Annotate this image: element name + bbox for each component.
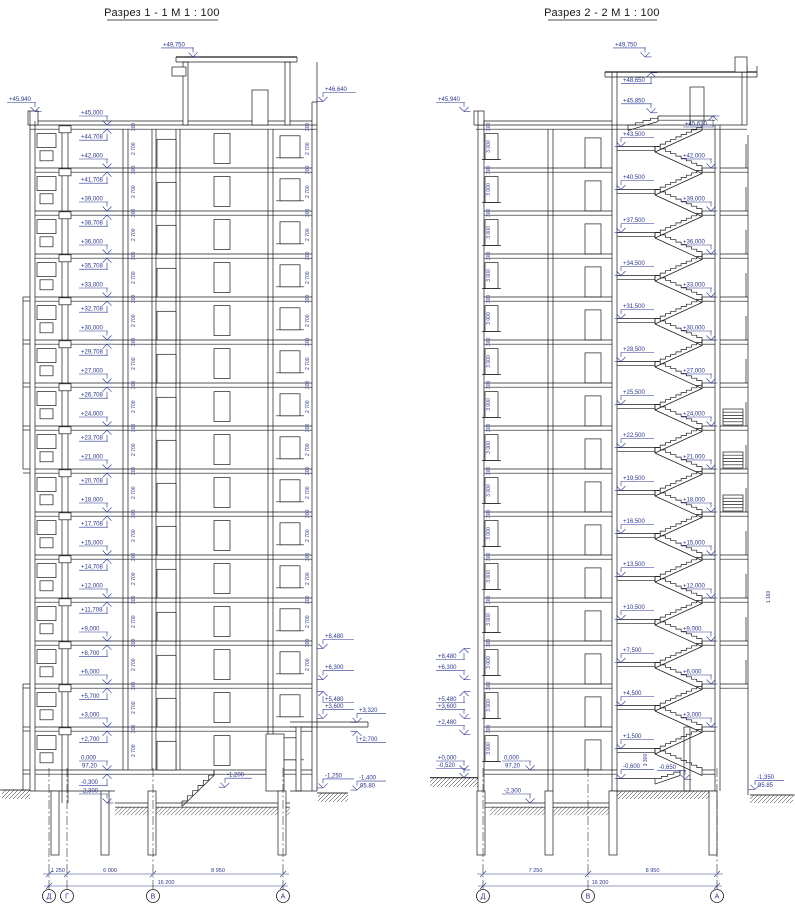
elevation-mark: +31,500: [615, 304, 655, 319]
label: 16 200: [592, 880, 609, 886]
label: +26,708: [81, 393, 104, 399]
label: 300: [486, 553, 492, 562]
label: +18,000: [683, 498, 706, 504]
label: 1 250: [51, 868, 65, 874]
label: 2 700: [305, 314, 311, 327]
label: 97,20: [505, 764, 521, 770]
label: 6 000: [103, 868, 117, 874]
label: +24,000: [81, 412, 104, 418]
label: +48,650: [623, 78, 646, 84]
label: 3 000: [486, 398, 492, 411]
label: +31,500: [623, 304, 646, 310]
elevation-mark: +9,000: [79, 627, 114, 642]
label: 0,000: [504, 756, 520, 762]
elevation-mark: +4,500: [615, 691, 655, 706]
elevation-mark: +40,500: [615, 175, 655, 190]
label: +3,000: [683, 713, 702, 719]
label: +30,000: [81, 326, 104, 332]
elevation-mark: +3,320: [351, 708, 387, 723]
label: +24,000: [683, 412, 706, 418]
label: +6,300: [438, 665, 457, 671]
label: 300: [486, 510, 492, 519]
elevation-mark: +49,750: [613, 42, 652, 57]
elevation-mark: +11,708: [79, 602, 114, 614]
label: 300: [486, 639, 492, 648]
label: +2,700: [359, 737, 378, 743]
label: +6,000: [81, 670, 100, 676]
label: Д: [47, 894, 52, 901]
label: -1,350: [757, 775, 775, 781]
axis-bubble: А: [711, 890, 724, 903]
label: 16 200: [158, 880, 175, 886]
label: 2 700: [305, 271, 311, 284]
label: 300: [305, 596, 311, 605]
label: 1 160: [766, 591, 772, 604]
label: +17,708: [81, 522, 104, 528]
section-2-drawing: +49,750+45,940+48,650+45,850+45,630+8,48…: [430, 42, 795, 902]
label: +8,480: [325, 634, 344, 640]
label: 300: [131, 166, 137, 175]
elevation-mark: +21,000: [79, 455, 114, 470]
label: +40,500: [623, 175, 646, 181]
label: -0,300: [81, 780, 99, 786]
label: 3 000: [486, 183, 492, 196]
label: +12,000: [81, 584, 104, 590]
elevation-mark: +37,500: [615, 218, 655, 233]
label: +11,708: [81, 608, 103, 614]
elevation-mark: +48,650: [621, 73, 658, 85]
label: +6,300: [325, 665, 344, 671]
label: 0,000: [81, 756, 97, 762]
label: +45,630: [685, 122, 708, 128]
elevation-mark: +2,700: [79, 731, 114, 743]
label: 2 700: [305, 615, 311, 628]
label: +42,000: [683, 154, 706, 160]
elevation-mark: 0,00097,20: [502, 756, 537, 771]
label: 2 700: [131, 314, 137, 327]
elevation-mark: +3,600: [317, 704, 355, 719]
label: 300: [305, 424, 311, 433]
label: 300: [305, 467, 311, 476]
axis-bubble: В: [582, 890, 595, 903]
label: +27,000: [81, 369, 104, 375]
elevation-mark: -0,300: [79, 774, 114, 786]
label: 300: [131, 553, 137, 562]
elevation-mark: +6,000: [79, 670, 114, 685]
label: +16,500: [623, 519, 646, 525]
label: 300: [305, 252, 311, 261]
label: +49,750: [615, 42, 638, 48]
elevation-mark: +26,708: [79, 387, 114, 399]
label: 2 700: [131, 443, 137, 456]
drawing-sheet: Разрез 1 - 1 М 1 : 100 Разрез 2 - 2 М 1 …: [0, 0, 795, 912]
elevation-mark: +45,940: [436, 97, 471, 112]
elevation-mark: +8,480: [317, 634, 355, 649]
label: 2 700: [131, 615, 137, 628]
label: 2 700: [305, 185, 311, 198]
axis-bubble: Д: [477, 890, 490, 903]
label: 300: [305, 295, 311, 304]
label: 2 700: [305, 357, 311, 370]
elevation-mark: +39,000: [79, 197, 114, 212]
elevation-mark: +2,700: [351, 731, 387, 743]
label: 300: [131, 682, 137, 691]
label: +6,000: [683, 670, 702, 676]
label: 2 700: [131, 400, 137, 413]
label: +3,600: [438, 704, 457, 710]
elevation-mark: +25,500: [615, 390, 655, 405]
label: 300: [486, 209, 492, 218]
label: 2 700: [305, 529, 311, 542]
label: 3 000: [486, 312, 492, 325]
label: +38,708: [81, 221, 104, 227]
elevation-mark: +5,480: [436, 692, 471, 704]
label: 2 700: [131, 658, 137, 671]
elevation-mark: +36,000: [79, 240, 114, 255]
label: 300: [486, 166, 492, 175]
label: 3 000: [486, 484, 492, 497]
label: +21,000: [81, 455, 104, 461]
elevation-mark: +45,850: [621, 98, 658, 113]
label: 2 700: [131, 744, 137, 757]
label: 300: [305, 209, 311, 218]
label: +45,940: [9, 97, 32, 103]
label: +37,500: [623, 218, 646, 224]
label: +29,708: [81, 350, 104, 356]
label: +20,708: [81, 479, 104, 485]
label: 300: [131, 338, 137, 347]
label: 3 000: [486, 699, 492, 712]
elevation-mark: +30,000: [79, 326, 114, 341]
label: 300: [486, 596, 492, 605]
elevation-mark: +19,500: [615, 476, 655, 491]
elevation-mark: +7,500: [615, 648, 655, 663]
label: 300: [131, 252, 137, 261]
label: +25,500: [623, 390, 646, 396]
label: А: [281, 894, 286, 901]
label: +36,000: [683, 240, 706, 246]
elevation-mark: +46,640: [317, 87, 357, 102]
label: 95.80: [360, 784, 376, 790]
label: +45,000: [81, 111, 104, 117]
label: 2 700: [131, 529, 137, 542]
label: +3,600: [325, 704, 344, 710]
elevation-mark: +45,000: [79, 111, 114, 126]
label: 3 300: [643, 754, 649, 767]
label: 8 950: [211, 868, 225, 874]
label: -2,300: [504, 789, 522, 795]
label: 300: [131, 510, 137, 519]
elevation-mark: +49,750: [161, 42, 200, 57]
label: +32,708: [81, 307, 104, 313]
elevation-mark: +34,500: [615, 261, 655, 276]
label: -1,400: [359, 776, 377, 782]
axis-dimensions: 1 2506 0008 95016 200ДГВА: [43, 768, 290, 903]
elevation-mark: +43,500: [615, 132, 655, 147]
elevation-mark: +42,000: [79, 154, 114, 169]
label: 300: [305, 639, 311, 648]
label: 2 700: [131, 185, 137, 198]
elevation-mark: +13,500: [615, 562, 655, 577]
label: 2 700: [131, 142, 137, 155]
label: +28,500: [623, 347, 646, 353]
label: +2,480: [438, 720, 457, 726]
label: +23,708: [81, 436, 104, 442]
label: +35,708: [81, 264, 104, 270]
elevation-mark: +35,708: [79, 258, 114, 270]
elevation-mark: +44,708: [79, 129, 114, 141]
label: 300: [486, 424, 492, 433]
label: +27,000: [683, 369, 706, 375]
elevation-mark: +24,000: [79, 412, 114, 427]
label: 300: [305, 381, 311, 390]
label: 300: [131, 123, 137, 132]
label: А: [715, 894, 720, 901]
elevation-mark: +45,940: [7, 97, 42, 112]
elevation-mark: +5,480: [317, 692, 355, 704]
label: 3 000: [486, 441, 492, 454]
label: 2 700: [305, 400, 311, 413]
label: 2 700: [131, 228, 137, 241]
label: 2 700: [305, 142, 311, 155]
label: 300: [305, 338, 311, 347]
label: 3 000: [486, 570, 492, 583]
label: 300: [131, 725, 137, 734]
label: +44,708: [81, 135, 104, 141]
label: +45,850: [623, 98, 646, 104]
axis-bubble: А: [277, 890, 290, 903]
label: 2 700: [305, 443, 311, 456]
elevation-mark: +16,500: [615, 519, 655, 534]
label: +19,500: [623, 476, 646, 482]
label: В: [586, 894, 591, 901]
label: 3 000: [486, 355, 492, 368]
label: +15,000: [81, 541, 104, 547]
elevation-mark: +41,708: [79, 172, 114, 184]
label: 3 000: [486, 140, 492, 153]
label: +36,000: [81, 240, 104, 246]
elevation-mark: +23,708: [79, 430, 114, 442]
label: +9,000: [683, 627, 702, 633]
label: -0,520: [438, 763, 456, 769]
elevation-mark: +15,000: [79, 541, 114, 556]
label: +8,480: [438, 654, 457, 660]
label: +45,940: [438, 97, 461, 103]
label: -1,200: [227, 773, 245, 779]
label: Д: [481, 894, 486, 901]
label: -1,250: [325, 773, 343, 779]
label: 3 000: [486, 269, 492, 282]
label: 8 950: [646, 868, 660, 874]
elevation-mark: +2,480: [436, 720, 471, 735]
label: +1,500: [623, 734, 642, 740]
label: +7,500: [623, 648, 642, 654]
label: 2 700: [305, 658, 311, 671]
label: 300: [486, 338, 492, 347]
label: 300: [486, 295, 492, 304]
axis-bubble: В: [147, 890, 160, 903]
label: +3,000: [81, 713, 100, 719]
label: 300: [486, 252, 492, 261]
label: 300: [305, 553, 311, 562]
label: +18,000: [81, 498, 104, 504]
elevation-mark: -1,250: [317, 773, 355, 788]
elevation-mark: +10,500: [615, 605, 655, 620]
label: +33,000: [81, 283, 104, 289]
label: 300: [486, 467, 492, 476]
label: +5,480: [325, 697, 344, 703]
axis-bubble: Г: [61, 890, 74, 903]
label: +5,480: [438, 697, 457, 703]
label: 300: [486, 381, 492, 390]
elevation-mark: +29,708: [79, 344, 114, 356]
label: 2 700: [131, 271, 137, 284]
label: -0,650: [659, 765, 677, 771]
label: 300: [131, 295, 137, 304]
label: 3 000: [486, 226, 492, 239]
section1-title: Разрез 1 - 1 М 1 : 100: [104, 7, 220, 19]
label: 3 000: [486, 527, 492, 540]
elevation-mark: +22,500: [615, 433, 655, 448]
elevation-mark: +38,708: [79, 215, 114, 227]
label: +15,000: [683, 541, 706, 547]
label: -0,600: [623, 764, 641, 770]
label: +9,000: [81, 627, 100, 633]
label: 97,20: [82, 764, 98, 770]
label: +22,500: [623, 433, 646, 439]
label: 2 700: [131, 486, 137, 499]
label: +34,500: [623, 261, 646, 267]
elevation-mark: +8,480: [436, 649, 471, 661]
label: +4,500: [623, 691, 642, 697]
elevation-mark: +17,708: [79, 516, 114, 528]
label: 3 000: [486, 656, 492, 669]
label: +14,708: [81, 565, 104, 571]
label: В: [151, 894, 156, 901]
label: +39,000: [81, 197, 104, 203]
elevation-mark: +14,708: [79, 559, 114, 571]
elevation-mark: 0,00097,20: [79, 756, 114, 771]
label: +42,000: [81, 154, 104, 160]
label: +13,500: [623, 562, 646, 568]
axis-bubble: Д: [43, 890, 56, 903]
label: 2 700: [131, 357, 137, 370]
label: +8,700: [81, 651, 100, 657]
elevation-mark: +5,700: [79, 688, 114, 700]
elevation-mark: +1,500: [615, 734, 655, 749]
label: +39,000: [683, 197, 706, 203]
label: +49,750: [163, 42, 186, 48]
elevation-mark: +27,000: [79, 369, 114, 384]
section2-structure: [430, 57, 795, 855]
label: 300: [131, 424, 137, 433]
label: 2 700: [305, 572, 311, 585]
label: +5,700: [81, 694, 100, 700]
section2-stairs: [617, 116, 715, 784]
label: +10,500: [623, 605, 646, 611]
label: 2 700: [305, 486, 311, 499]
label: 300: [305, 166, 311, 175]
section1-structure: [0, 57, 368, 855]
section2-title: Разрез 2 - 2 М 1 : 100: [544, 7, 660, 19]
label: Г: [65, 894, 69, 901]
label: 2 700: [131, 701, 137, 714]
elevation-mark: +28,500: [615, 347, 655, 362]
label: 300: [131, 596, 137, 605]
label: +12,000: [683, 584, 706, 590]
label: 2 700: [131, 572, 137, 585]
elevation-mark: -1,40095.80: [351, 776, 387, 791]
label: 300: [131, 209, 137, 218]
label: +21,000: [683, 455, 706, 461]
label: 300: [131, 467, 137, 476]
sections-canvas: Разрез 1 - 1 М 1 : 100 Разрез 2 - 2 М 1 …: [0, 0, 795, 912]
elevation-mark: +8,700: [79, 645, 114, 657]
label: +0,000: [438, 756, 457, 762]
label: 3 000: [486, 613, 492, 626]
label: 300: [131, 381, 137, 390]
label: +46,640: [325, 87, 348, 93]
elevation-mark: -1,35095.85: [749, 775, 785, 790]
elevation-mark: +20,708: [79, 473, 114, 485]
elevation-mark: +3,600: [436, 704, 471, 719]
label: +43,500: [623, 132, 646, 138]
label: 300: [131, 639, 137, 648]
elevation-mark: +32,708: [79, 301, 114, 313]
label: +41,708: [81, 178, 104, 184]
label: 95.85: [758, 783, 774, 789]
label: +3,320: [359, 708, 378, 714]
label: +33,000: [683, 283, 706, 289]
label: 2 700: [305, 228, 311, 241]
elevation-mark: +6,300: [317, 665, 355, 680]
label: 300: [305, 123, 311, 132]
label: 300: [486, 682, 492, 691]
label: 300: [305, 510, 311, 519]
elevation-mark: +3,000: [79, 713, 114, 728]
label: 300: [486, 725, 492, 734]
elevation-mark: +12,000: [79, 584, 114, 599]
label: 3 000: [486, 742, 492, 755]
label: 300: [486, 123, 492, 132]
elevation-mark: -1,200: [219, 773, 253, 788]
elevation-mark: +33,000: [79, 283, 114, 298]
label: +2,700: [81, 737, 100, 743]
label: +30,000: [683, 326, 706, 332]
label: -2,300: [81, 789, 99, 795]
elevation-mark: -2,300: [502, 789, 537, 804]
elevation-mark: +18,000: [79, 498, 114, 513]
elevation-mark: +6,300: [436, 665, 471, 680]
section-1-drawing: +49,750+45,940+46,640+45,000+44,708+42,0…: [0, 42, 386, 902]
label: 7 250: [529, 868, 543, 874]
